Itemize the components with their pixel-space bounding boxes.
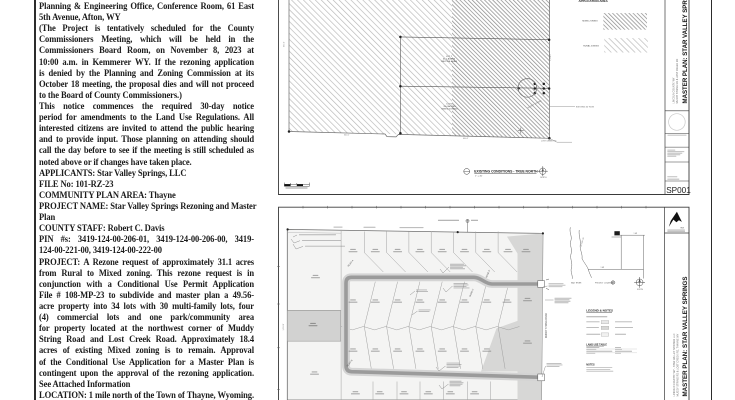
svg-text:SP001: SP001 — [666, 186, 691, 195]
svg-text:LAND USE TABLE: LAND USE TABLE — [586, 343, 607, 346]
svg-text:NOTES: NOTES — [586, 364, 595, 367]
svg-text:NORTH: NORTH — [637, 289, 644, 291]
svg-text:LINCOLN COUNTY, WY - STAR VALL: LINCOLN COUNTY, WY - STAR VALLEY SPRINGS… — [673, 333, 676, 396]
svg-text:340.1': 340.1' — [344, 135, 350, 137]
svg-text:1,318.5': 1,318.5' — [550, 53, 552, 61]
svg-text:MUDDY STRING RD & LOST CREEK R: MUDDY STRING RD & LOST CREEK RD, THAYNE … — [676, 333, 679, 396]
svg-text:31.1 ACRES: 31.1 ACRES — [443, 58, 456, 61]
svg-text:APPLICATION AREA: APPLICATION AREA — [579, 0, 609, 3]
svg-text:SALT RIVER: SALT RIVER — [571, 281, 582, 284]
svg-text:NORTH: NORTH — [540, 177, 547, 179]
svg-text:MUDDY STRING ROAD: MUDDY STRING ROAD — [545, 313, 548, 338]
svg-text:657.4': 657.4' — [283, 41, 285, 47]
svg-text:MIXED ZONING: MIXED ZONING — [441, 109, 457, 111]
svg-text:TRUE: TRUE — [680, 228, 684, 230]
svg-text:1 MI: 1 MI — [634, 233, 638, 235]
svg-text:1" = 40': 1" = 40' — [475, 176, 483, 178]
svg-text:MASTER PLAN: STAR VALLEY SPRIN: MASTER PLAN: STAR VALLEY SPRINGS — [682, 277, 689, 397]
svg-text:PROJECT LOCATION: PROJECT LOCATION — [595, 281, 614, 284]
svg-text:MUDDY STRING RD & LOST CREEK R: MUDDY STRING RD & LOST CREEK RD — [676, 59, 679, 104]
svg-text:EXISTING 30' ROW: EXISTING 30' ROW — [576, 106, 594, 108]
svg-text:LEGEND & NOTES: LEGEND & NOTES — [586, 309, 613, 313]
svg-text:MASTER PLAN: STAR VALLEY SPRIN: MASTER PLAN: STAR VALLEY SPRINGS — [682, 0, 689, 104]
svg-text:660.2': 660.2' — [463, 138, 469, 140]
svg-text:1,312.9': 1,312.9' — [283, 323, 285, 331]
svg-text:1 MI: 1 MI — [601, 267, 605, 269]
svg-text:18.4 ACRES: 18.4 ACRES — [443, 105, 456, 108]
svg-text:REZONE AREA: REZONE AREA — [441, 60, 457, 63]
svg-text:LOST CREEK RD: LOST CREEK RD — [541, 140, 557, 142]
svg-text:RURAL ZONING: RURAL ZONING — [583, 45, 599, 48]
svg-text:MIXED ZONING: MIXED ZONING — [582, 20, 598, 22]
svg-text:US HWY 89: US HWY 89 — [581, 237, 585, 247]
svg-text:EXISTING CONDITIONS - TRUE NOR: EXISTING CONDITIONS - TRUE NORTH — [474, 170, 538, 174]
